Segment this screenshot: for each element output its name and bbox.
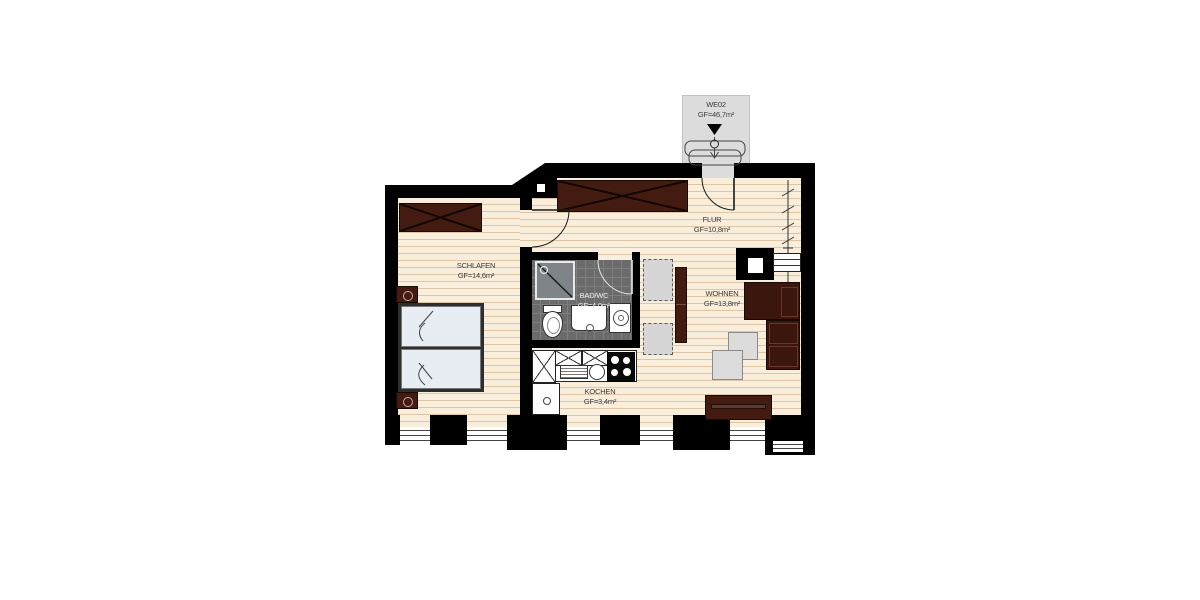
room-label-schlafen: SCHLAFEN GF=14,6m² [436,261,516,281]
burner-icon [623,357,630,364]
radiator-line [774,259,800,260]
mattress [401,349,481,389]
wall-bedroom-top [385,185,525,198]
window-symbol [400,427,430,445]
unit-id: WE02 [683,100,749,110]
shaft-symbol [736,248,774,280]
wall-pier [673,415,730,450]
side-table-symbol [712,350,743,380]
knob-icon [543,397,551,405]
sofa-cushion [769,323,798,344]
mattress [401,306,481,347]
wall-bath-bottom [520,340,640,348]
sofa-cushion [769,346,798,367]
wardrobe-symbol [557,180,688,212]
wall-pier [430,415,467,445]
wall-pier [600,415,640,445]
room-name: SCHLAFEN [436,261,516,271]
room-label-kochen: KOCHEN GF=3,4m² [560,387,640,407]
room-label-badwc: BAD/WC GF=4,0m² [554,291,634,311]
floor-plan: WE02 GF=46,7m² [385,95,815,460]
tall-cabinet-symbol [532,350,556,383]
wall-bedroom-divider-upper [520,185,532,210]
room-area: GF=3,4m² [560,397,640,407]
room-area: GF=4,0m² [554,301,634,311]
window-symbol [467,427,507,445]
kitchen-sink-drainer [560,365,588,379]
window-symbol [567,427,600,445]
room-name: BAD/WC [554,291,634,301]
room-label-flur: FLUR GF=10,8m² [672,215,752,235]
cabinet-symbol [532,383,560,415]
chair-symbol [643,323,673,355]
washer-hub [618,315,624,321]
wall-bath-top [532,252,598,260]
bed-symbol [398,303,484,392]
room-name: FLUR [672,215,752,225]
wardrobe-symbol [399,203,482,232]
unit-label: WE02 GF=46,7m² [683,100,749,120]
radiator-line [774,265,800,266]
toilet-bowl [547,317,560,334]
room-area: GF=14,6m² [436,271,516,281]
wall-right [801,163,815,455]
window-symbol [730,427,765,445]
room-area: GF=10,8m² [672,225,752,235]
kitchen-sink-symbol [589,364,605,380]
nightstand-symbol [396,392,418,409]
wall-hall-top [545,163,702,178]
cooktop-symbol [607,352,635,382]
room-label-wohnen: WOHNEN GF=13,8m² [682,289,762,309]
nightstand-symbol [396,286,418,303]
room-name: KOCHEN [560,387,640,397]
room-name: WOHNEN [682,289,762,299]
sideboard-symbol [705,395,772,420]
wall-bedroom-divider-lower [520,247,532,428]
sofa-symbol [766,320,800,370]
sideboard-detail [711,404,766,409]
wall-pier [507,415,567,450]
burner-icon [611,369,618,376]
lamp-icon [403,291,413,301]
chair-symbol [643,259,673,301]
sofa-cushion [781,287,798,317]
burner-icon [623,368,631,376]
washer-door-icon [613,310,629,326]
lamp-icon [403,397,413,407]
drain-icon [586,324,594,332]
room-area: GF=13,8m² [682,299,762,309]
shaft-opening [748,258,763,273]
upper-cabinet-symbol [555,350,582,366]
unit-area: GF=46,7m² [683,110,749,120]
radiator-symbol [773,253,801,272]
window-symbol [640,427,673,445]
burner-icon [611,356,619,364]
window-symbol [773,441,803,452]
wall-pier [385,415,400,445]
